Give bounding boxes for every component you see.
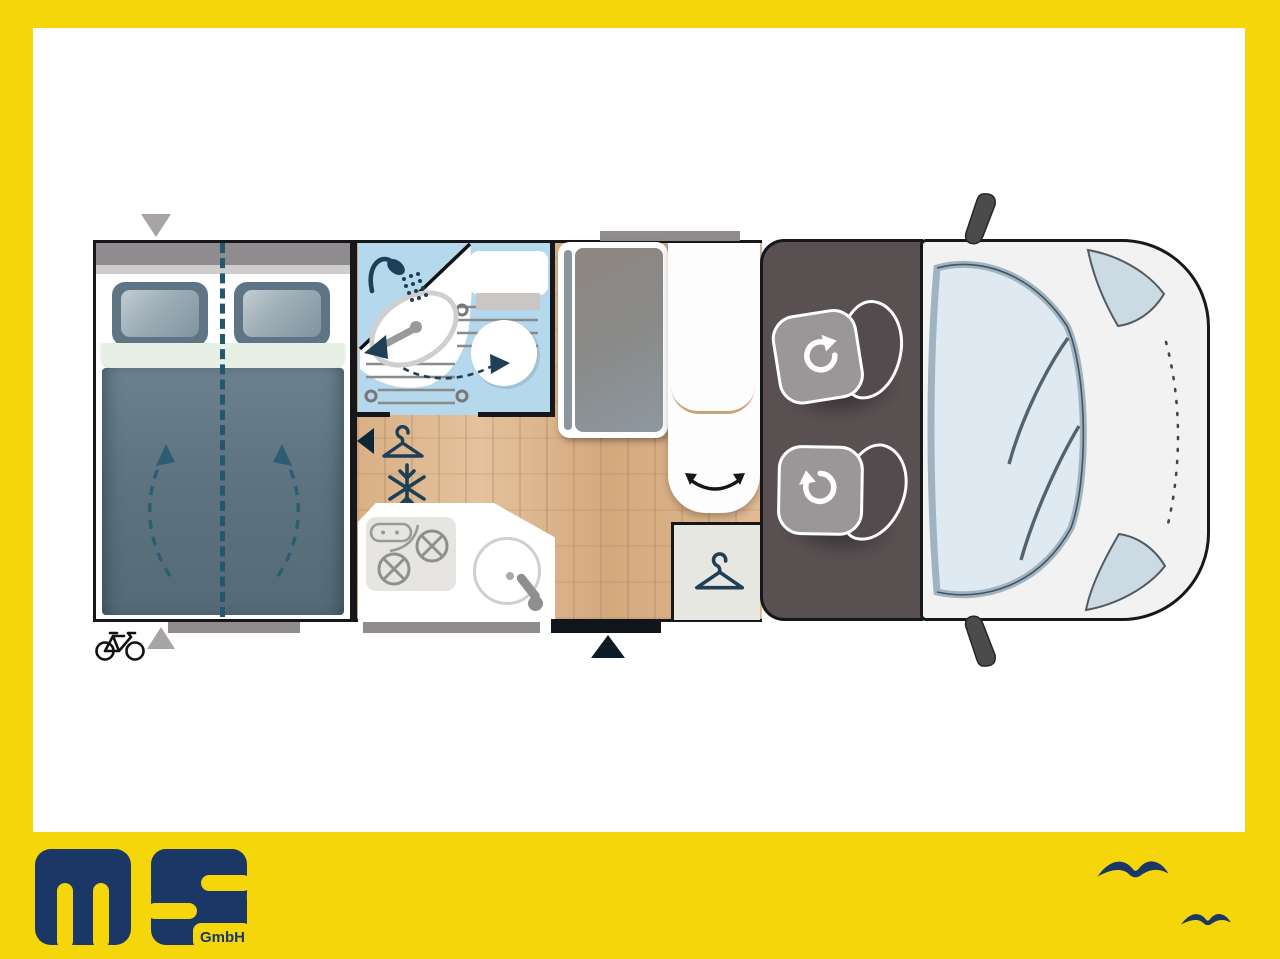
table-top: [575, 248, 663, 432]
entry-door: [551, 619, 661, 633]
window-bar-bottom: [168, 622, 300, 633]
logo-letter-s: GmbH: [147, 849, 249, 949]
bathroom-fittings: [358, 243, 552, 415]
pillow-left: [112, 282, 208, 346]
passenger-seat: [770, 433, 921, 559]
entry-door-arrow-icon: [591, 635, 625, 658]
seagull-icon: [1180, 906, 1232, 934]
wardrobe-cabinet: [671, 522, 760, 620]
kitchen-unit: [358, 503, 555, 622]
ms-logo: GmbH: [35, 849, 249, 949]
page: GmbH REISEMOBILE Mobile Freizeit genieße…: [0, 0, 1280, 959]
cab-area: [760, 239, 923, 621]
bench-swing-arrow-icon: [684, 471, 746, 499]
rear-marker-arrow-icon: [141, 214, 171, 237]
seat-cushion: [768, 306, 867, 408]
driver-seat: [769, 297, 916, 418]
headlight-left: [1088, 250, 1164, 326]
bicycle-icon: [94, 626, 146, 662]
bed-extend-arrow-icon: [118, 408, 330, 580]
dinette-table: [558, 242, 668, 438]
van-front-body: [920, 239, 1210, 621]
side-mirror-icon: [953, 192, 1005, 248]
kitchen-sink-icon: [473, 537, 541, 605]
window-bar-top: [600, 231, 740, 241]
headlight-right: [1086, 534, 1165, 610]
seat-cushion: [777, 445, 865, 536]
logo-suffix: GmbH: [200, 929, 245, 946]
bench-edge: [564, 250, 572, 430]
brand-band: GmbH REISEMOBILE Mobile Freizeit genieße…: [0, 832, 1280, 959]
toilet-seat-band: [476, 293, 540, 310]
bathroom-wall-bottom: [357, 412, 390, 417]
rear-marker-arrow-icon: [147, 627, 175, 649]
toilet-bowl: [471, 320, 537, 386]
pillow-right: [234, 282, 330, 346]
bonnet-line: [1166, 342, 1178, 532]
bathroom-area: [358, 243, 552, 415]
bathroom-wall-bottom: [478, 412, 552, 417]
seagull-icon: [1096, 850, 1170, 890]
toilet-cistern: [470, 251, 548, 295]
swivel-seat-arrow-icon: [793, 333, 843, 381]
wardrobe-hanger-icon: [354, 425, 428, 459]
swivel-seat-arrow-icon: [798, 467, 843, 514]
table-edge-line: [671, 383, 755, 414]
bedroom-area: [96, 243, 350, 619]
hob-burner-icon: [366, 517, 456, 591]
wardrobe-hanger-icon: [692, 551, 746, 591]
bench-seat: [668, 243, 760, 513]
window-bar-bottom: [363, 622, 540, 633]
bathroom-wall-right: [550, 243, 555, 417]
logo-letter-m: [35, 849, 131, 949]
hob: [366, 517, 456, 591]
side-mirror-icon: [953, 612, 1005, 668]
van-front-graphics: [923, 242, 1207, 618]
